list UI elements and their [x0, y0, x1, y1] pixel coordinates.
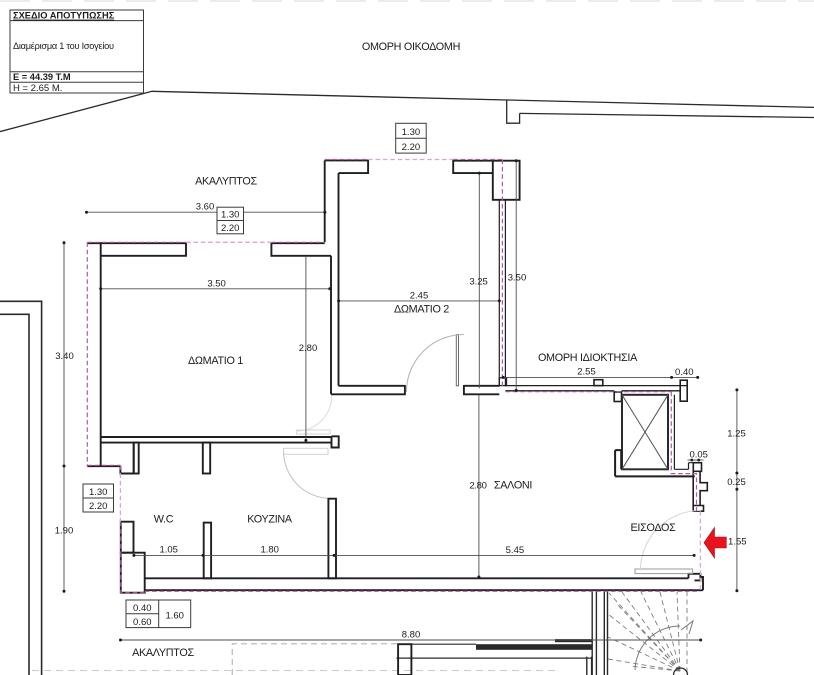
svg-text:2.80: 2.80: [299, 343, 318, 354]
svg-text:ΔΩΜΑΤΙΟ 1: ΔΩΜΑΤΙΟ 1: [188, 355, 243, 367]
svg-text:1.55: 1.55: [728, 537, 747, 548]
svg-text:2.55: 2.55: [577, 367, 596, 378]
svg-text:1.80: 1.80: [260, 545, 279, 556]
svg-text:0.40: 0.40: [675, 367, 694, 378]
svg-text:5.45: 5.45: [506, 545, 525, 556]
svg-text:0.05: 0.05: [689, 450, 708, 461]
svg-text:2.80: 2.80: [469, 480, 486, 491]
svg-text:3.25: 3.25: [469, 277, 488, 288]
svg-text:W.C: W.C: [154, 513, 174, 525]
svg-text:ΕΙΣΟΔΟΣ: ΕΙΣΟΔΟΣ: [630, 522, 676, 534]
svg-text:ΣΑΛΟΝΙ: ΣΑΛΟΝΙ: [494, 479, 532, 491]
svg-text:0.60: 0.60: [133, 617, 152, 628]
svg-text:ΔΩΜΑΤΙΟ 2: ΔΩΜΑΤΙΟ 2: [394, 304, 449, 316]
svg-text:3.60: 3.60: [196, 202, 215, 213]
svg-text:1.90: 1.90: [55, 526, 74, 537]
svg-text:H = 2.65 M.: H = 2.65 M.: [13, 83, 62, 94]
svg-text:3.40: 3.40: [55, 351, 74, 362]
svg-text:2.45: 2.45: [410, 291, 429, 302]
svg-text:1.30: 1.30: [221, 210, 240, 221]
svg-text:ΟΜΟΡΗ ΟΙΚΟΔΟΜΗ: ΟΜΟΡΗ ΟΙΚΟΔΟΜΗ: [362, 41, 460, 53]
svg-text:0.25: 0.25: [727, 477, 746, 488]
svg-text:1.05: 1.05: [159, 545, 178, 556]
svg-text:ΑΚΑΛΥΠΤΟΣ: ΑΚΑΛΥΠΤΟΣ: [195, 175, 257, 187]
svg-text:2.20: 2.20: [402, 142, 421, 153]
svg-text:3.50: 3.50: [508, 273, 527, 284]
svg-text:3.50: 3.50: [207, 279, 226, 290]
svg-text:ΣΧΕΔΙΟ ΑΠΟΤΥΠΩΣΗΣ: ΣΧΕΔΙΟ ΑΠΟΤΥΠΩΣΗΣ: [13, 11, 115, 21]
svg-text:1.60: 1.60: [165, 611, 184, 622]
svg-text:2.20: 2.20: [89, 501, 108, 512]
svg-text:8.80: 8.80: [402, 630, 421, 641]
svg-text:ΟΜΟΡΗ ΙΔΙΟΚΤΗΣΙΑ: ΟΜΟΡΗ ΙΔΙΟΚΤΗΣΙΑ: [538, 352, 638, 364]
svg-text:E = 44.39 Τ.Μ: E = 44.39 Τ.Μ: [13, 72, 71, 82]
svg-text:1.25: 1.25: [727, 429, 746, 440]
svg-text:ΚΟΥΖΙΝΑ: ΚΟΥΖΙΝΑ: [247, 513, 293, 525]
svg-text:2.20: 2.20: [221, 223, 240, 234]
svg-text:Διαμέρισμα 1 του Ισογείου: Διαμέρισμα 1 του Ισογείου: [13, 41, 114, 51]
svg-text:0.40: 0.40: [133, 603, 152, 614]
svg-text:1.30: 1.30: [402, 127, 421, 138]
svg-text:1.30: 1.30: [89, 487, 108, 498]
svg-text:ΑΚΑΛΥΠΤΟΣ: ΑΚΑΛΥΠΤΟΣ: [132, 647, 194, 659]
